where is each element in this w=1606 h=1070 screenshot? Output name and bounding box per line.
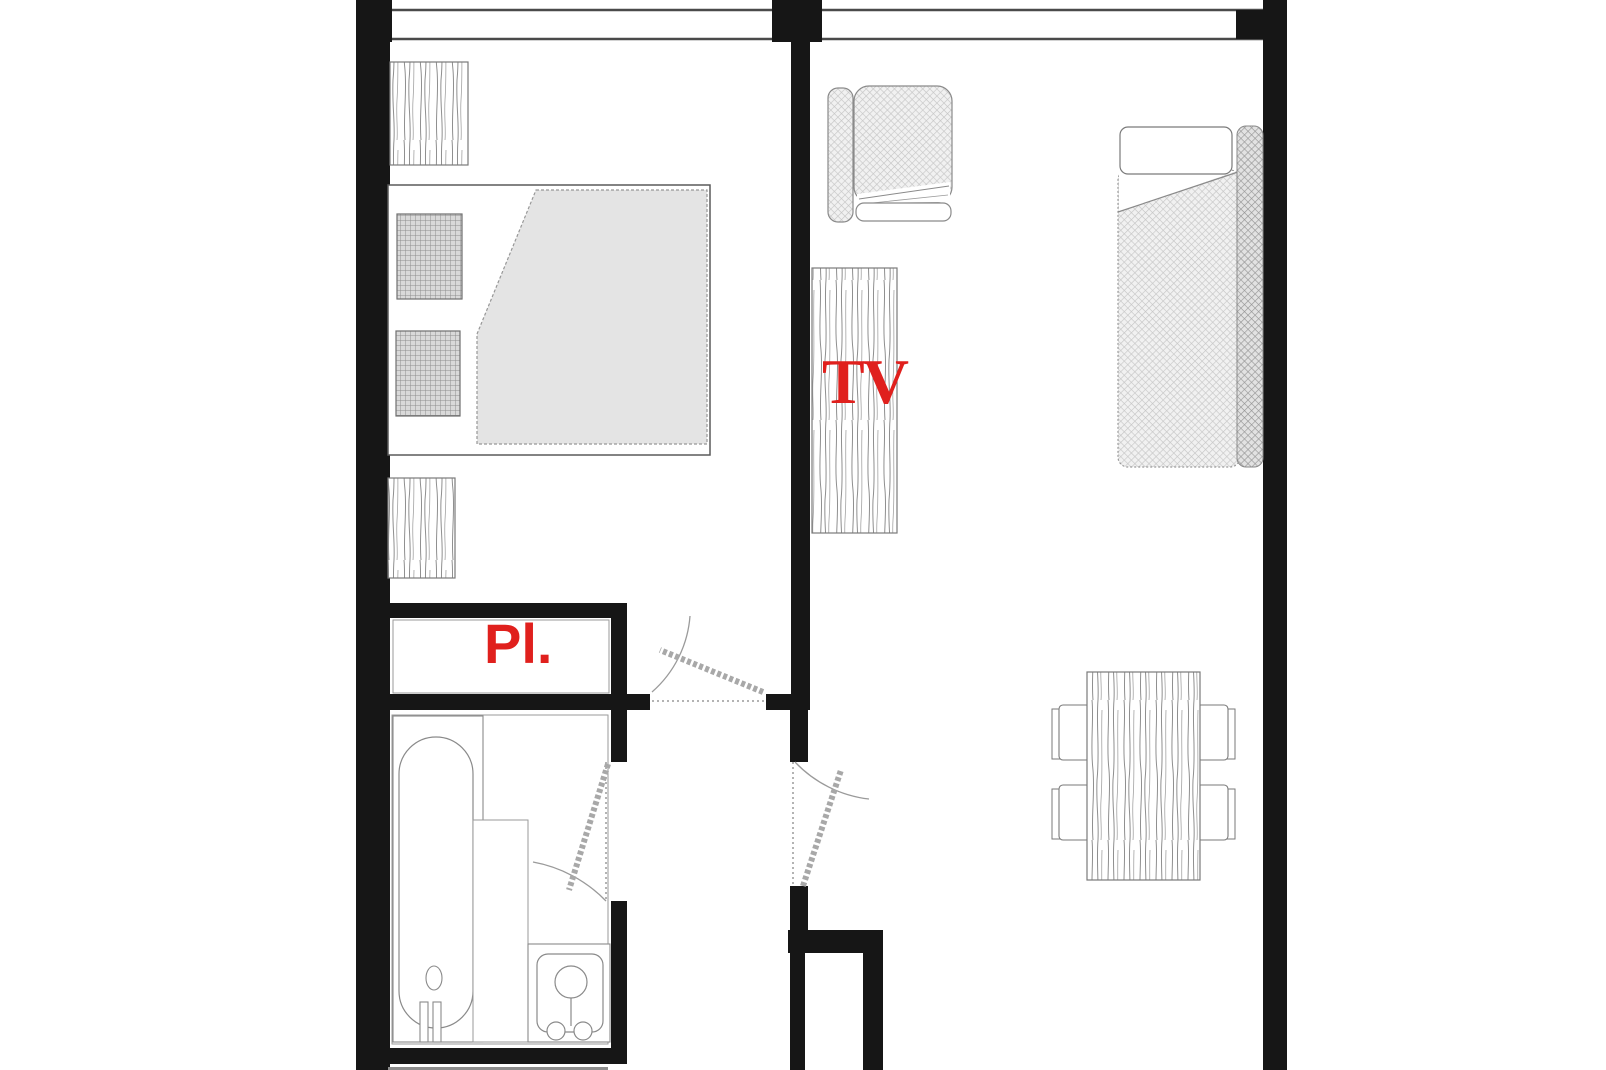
bedroom-door	[652, 616, 766, 701]
living-room-door-arc	[795, 762, 869, 799]
dining-set	[1052, 672, 1235, 880]
armchair-armrest	[828, 88, 853, 222]
floor-plan-drawing	[0, 0, 1606, 1070]
wall-closet-right	[611, 603, 627, 762]
bedroom	[388, 62, 710, 578]
washbasin-tap-left	[547, 1022, 565, 1040]
armchair	[828, 86, 952, 222]
wall-hall-top-right-jamb	[766, 694, 810, 710]
wall-hall-living-lower	[790, 886, 808, 932]
wall-right-outer	[1263, 0, 1287, 1070]
bathtub-faucet-left	[420, 1002, 428, 1042]
floor-plan: Pl. TV	[0, 0, 1606, 1070]
wall-entry-shaft-left	[790, 953, 805, 1070]
wall-top-right-nib	[1236, 10, 1265, 39]
washbasin-tap-right	[574, 1022, 592, 1040]
living-room	[812, 86, 1263, 880]
dining-table	[1087, 672, 1200, 880]
wardrobe	[390, 62, 468, 165]
nightstand	[388, 478, 455, 578]
bedroom-door-leaf	[660, 650, 763, 692]
wall-left-outer	[356, 0, 390, 1070]
daybed-bolster	[1237, 126, 1263, 467]
chair-left-bottom	[1059, 785, 1090, 840]
bed-pillow-top	[397, 214, 462, 299]
chair-left-top	[1059, 705, 1090, 760]
daybed-pillow	[1120, 127, 1232, 174]
bathroom	[392, 715, 610, 1044]
bathtub-drain	[426, 966, 442, 990]
bathroom-counter	[473, 820, 528, 1042]
washbasin	[528, 944, 610, 1042]
bed-pillow-bottom	[396, 331, 460, 416]
living-room-door-leaf	[803, 770, 841, 886]
closet-label: Pl.	[484, 616, 552, 672]
tv-label: TV	[822, 350, 907, 414]
wall-top-center-pillar	[772, 0, 822, 42]
wall-entry-shaft-right	[863, 953, 883, 1070]
chair-right-top	[1197, 705, 1228, 760]
armchair-footrest	[856, 203, 951, 221]
wall-hall-top-left	[356, 694, 650, 710]
bathtub-faucet-right	[433, 1002, 441, 1042]
wall-bedroom-living-divider	[791, 38, 810, 700]
chair-right-bottom	[1197, 785, 1228, 840]
bathtub	[393, 716, 483, 1042]
wall-bathroom-right-lower	[611, 901, 627, 1062]
wall-hall-living-upper	[790, 710, 808, 762]
window-band	[390, 10, 1263, 39]
daybed-mattress	[1118, 170, 1240, 467]
wall-bathroom-bottom	[385, 1048, 627, 1064]
wall-entry-jog	[788, 930, 883, 953]
daybed	[1118, 126, 1263, 467]
washbasin-bowl	[555, 966, 587, 998]
living-room-door	[793, 762, 869, 886]
wall-top-left-corner	[356, 0, 392, 42]
